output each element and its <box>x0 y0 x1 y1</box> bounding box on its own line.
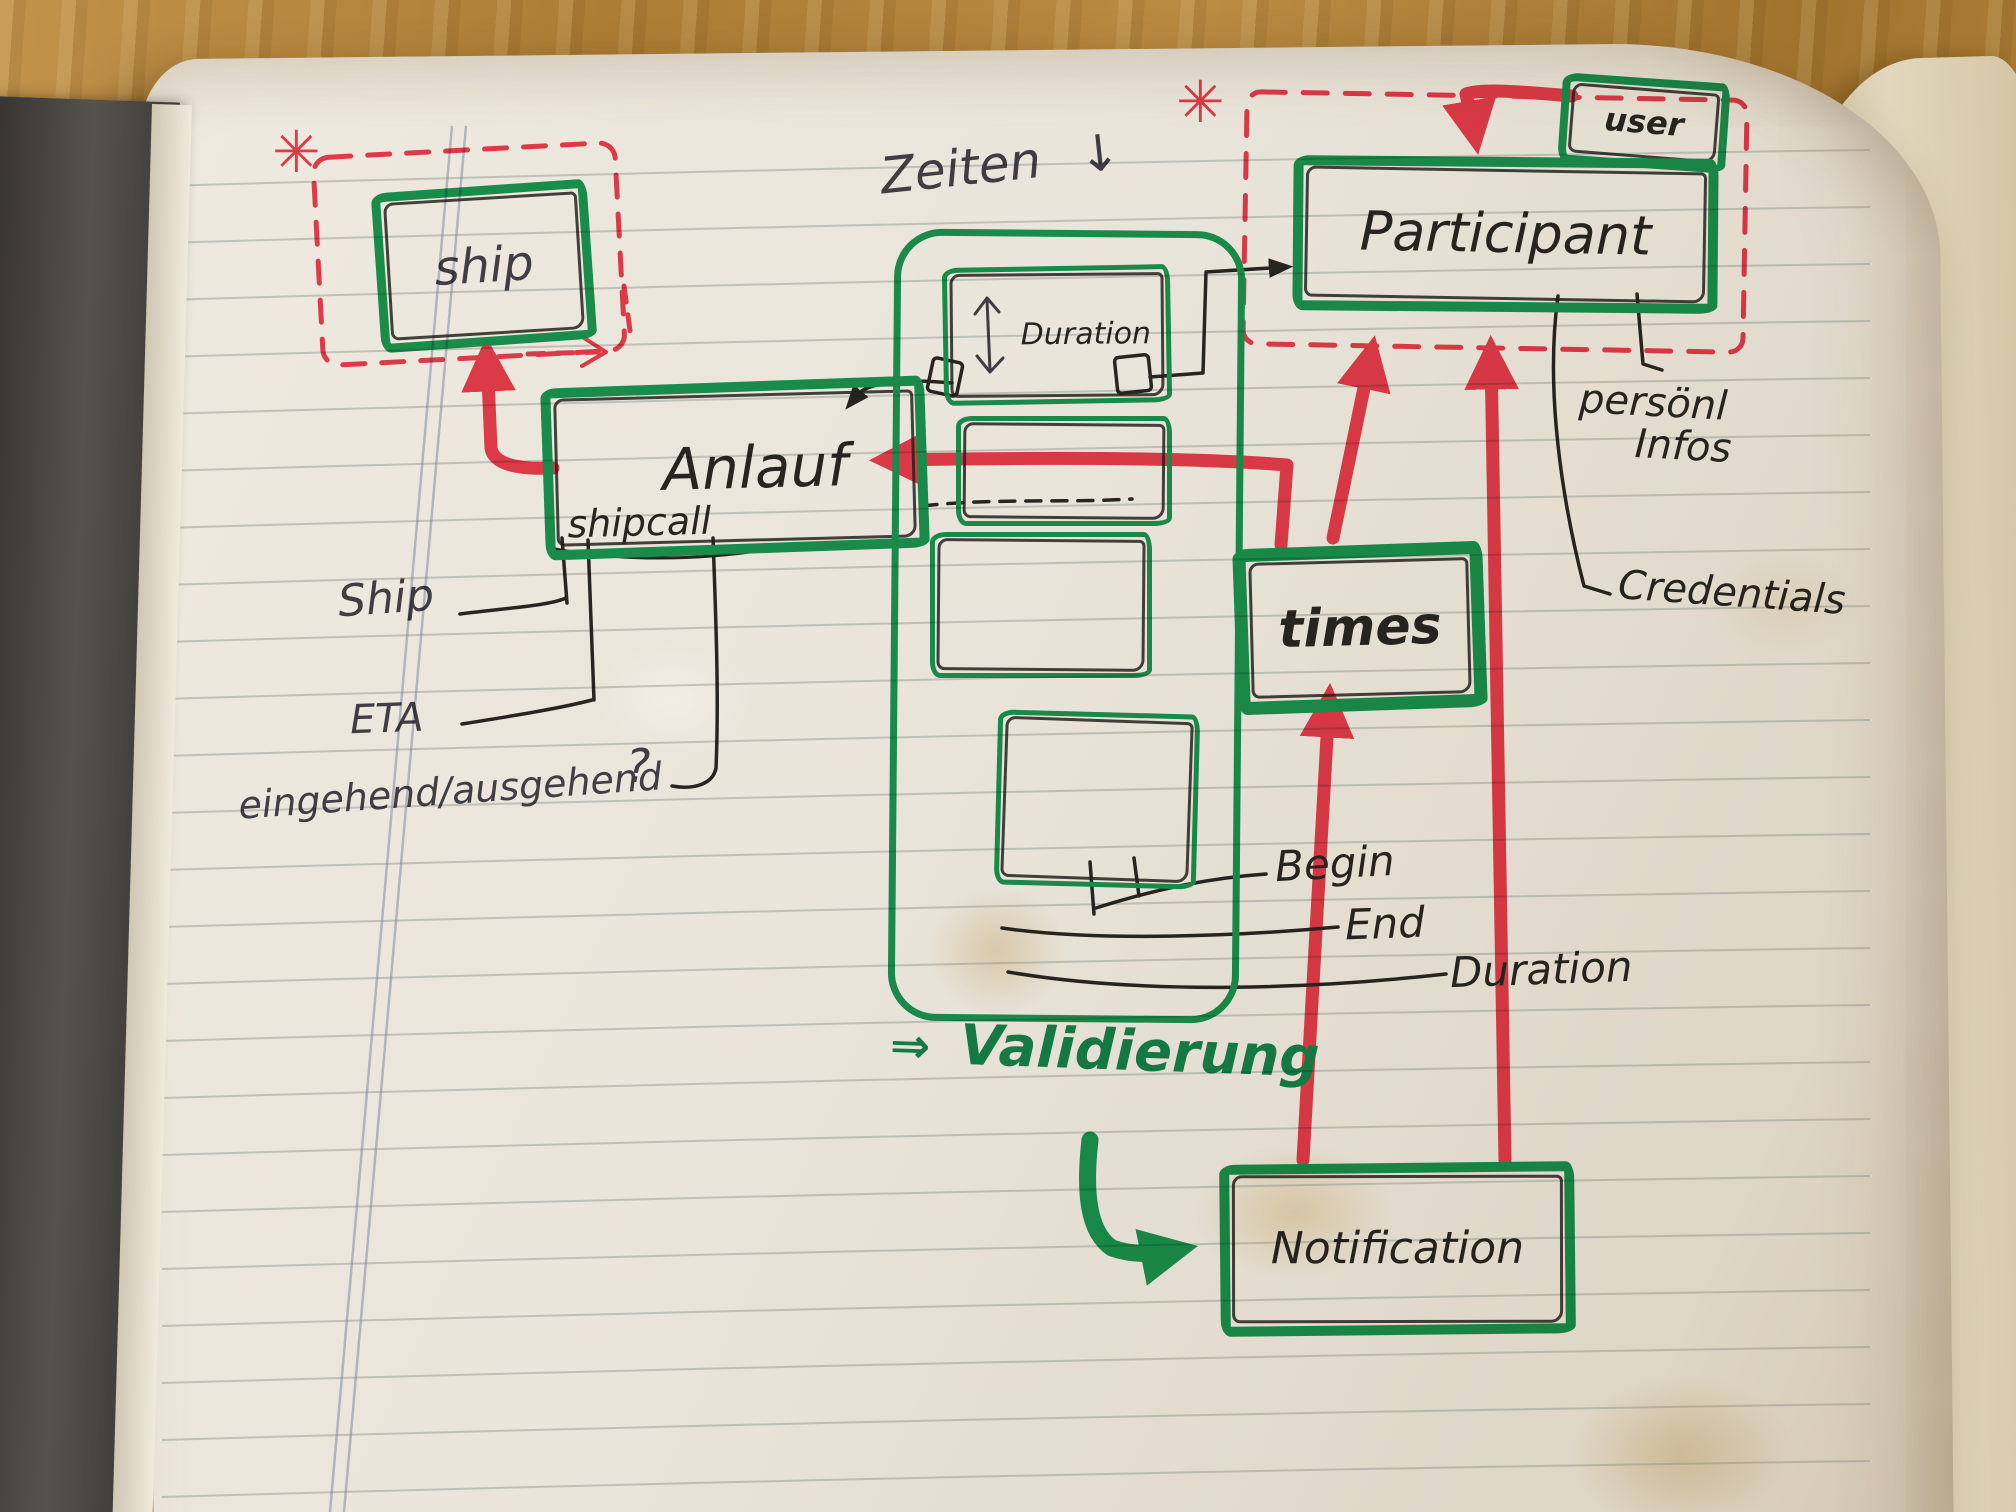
link-anlauf-to-ship-attr <box>460 598 566 614</box>
shipcall-box: Anlauf shipcall <box>540 375 930 560</box>
validierung-label: Validierung <box>959 1013 1321 1091</box>
attr-inout-question: ? <box>626 742 650 790</box>
arrow-validation-to-notification <box>1088 1140 1178 1254</box>
notification-box-label: Notification <box>1271 1226 1524 1273</box>
link-anlauf-to-eta <box>462 700 592 724</box>
zeiten-down-arrow-icon: ↓ <box>1075 123 1123 185</box>
attr-eta: ETA <box>349 697 424 742</box>
time-entry-box-2 <box>930 532 1152 678</box>
participant-box: Participant <box>1292 155 1718 314</box>
participant-box-label: Participant <box>1359 204 1651 266</box>
arrow-times-to-participant <box>1333 354 1371 538</box>
ink-layer: ship Anlauf shipcall Duration user Parti… <box>0 0 2016 1512</box>
ship-box-label: ship <box>433 238 535 294</box>
shipcall-box-sublabel: shipcall <box>567 502 712 546</box>
attr-end: End <box>1344 901 1425 948</box>
notebook-photo: ship Anlauf shipcall Duration user Parti… <box>0 0 2016 1512</box>
time-entry-box-3 <box>994 709 1201 889</box>
attr-personal: persönl Infos <box>1576 378 1735 470</box>
arrow-notification-to-participant <box>1491 354 1505 1160</box>
times-box-label: times <box>1278 599 1442 658</box>
attr-begin: Begin <box>1274 839 1396 889</box>
times-box: times <box>1232 541 1488 716</box>
asterisk-ship: ✳ <box>272 122 321 183</box>
user-box-label: user <box>1603 103 1685 143</box>
anlauf-attr-tick-2 <box>588 540 594 700</box>
time-entry-box-1 <box>956 416 1172 526</box>
attr-ship: Ship <box>337 573 436 626</box>
attr-personal-line2: Infos <box>1634 421 1733 472</box>
validierung-arrow-icon: ⇒ <box>889 1018 931 1075</box>
attr-duration: Duration <box>1449 945 1633 995</box>
notification-box: Notification <box>1219 1161 1576 1337</box>
ship-box: ship <box>371 179 598 354</box>
asterisk-participant: ✳ <box>1176 72 1225 133</box>
shipcall-box-label: Anlauf <box>662 435 849 501</box>
link-anlauf-to-inout <box>672 538 717 787</box>
